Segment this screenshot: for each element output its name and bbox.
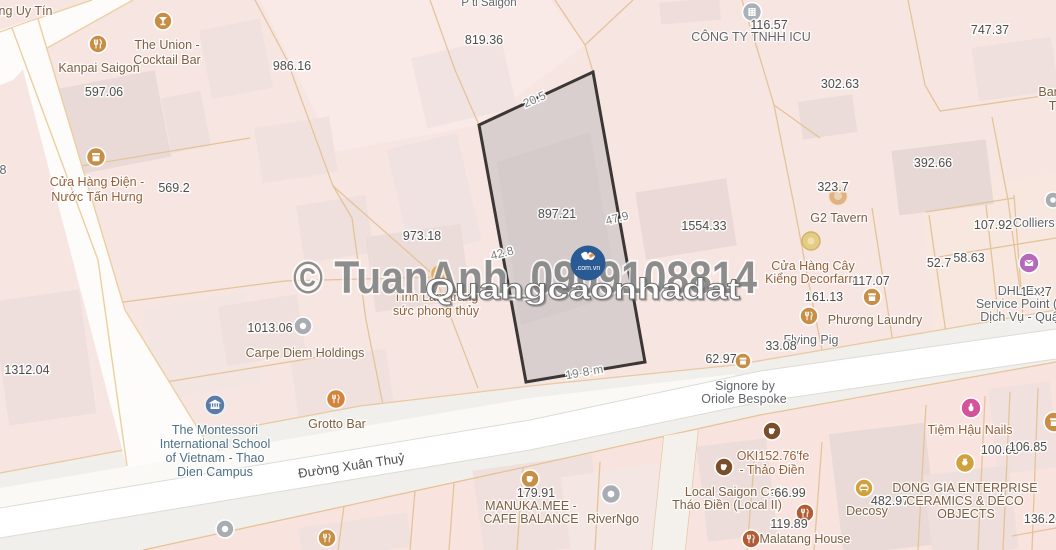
svg-text:Cocktail Bar: Cocktail Bar (133, 53, 200, 67)
svg-text:OBJECTS: OBJECTS (937, 507, 995, 521)
svg-text:Dien Campus: Dien Campus (177, 465, 253, 479)
svg-text:392.66: 392.66 (914, 156, 952, 170)
svg-text:The Union -: The Union - (134, 38, 199, 52)
svg-text:CERAMICS & DÉCO: CERAMICS & DÉCO (906, 493, 1024, 508)
svg-text:52.7: 52.7 (927, 256, 951, 270)
svg-text:Cửa Hàng Cây: Cửa Hàng Cây (771, 259, 855, 273)
svg-text:Dịch Vụ - Quận: Dịch Vụ - Quận (980, 310, 1056, 324)
svg-text:Bana: Bana (1038, 85, 1056, 99)
svg-text:.com.vn: .com.vn (576, 265, 601, 272)
svg-text:RiverNgo: RiverNgo (587, 512, 639, 526)
svg-text:Oriole Bespoke: Oriole Bespoke (701, 392, 787, 406)
svg-text:106.85: 106.85 (1009, 440, 1047, 454)
svg-text:Phương Laundry: Phương Laundry (828, 313, 923, 327)
svg-text:58.63: 58.63 (953, 251, 984, 265)
svg-text:161.13: 161.13 (805, 290, 843, 304)
svg-text:569.2: 569.2 (158, 181, 189, 195)
svg-text:Signore by: Signore by (715, 379, 776, 393)
svg-text:597.06: 597.06 (85, 85, 123, 99)
svg-text:Nước Tấn Hưng: Nước Tấn Hưng (51, 190, 142, 204)
svg-text:MANUKA.MEE -: MANUKA.MEE - (485, 499, 577, 513)
svg-text:àng Uy Tín: àng Uy Tín (0, 4, 53, 18)
svg-text:119.89: 119.89 (770, 517, 807, 531)
svg-text:1013.06: 1013.06 (247, 321, 292, 335)
svg-text:Carpe Diem Holdings: Carpe Diem Holdings (246, 346, 365, 360)
svg-text:Grotto Bar: Grotto Bar (308, 417, 366, 431)
svg-text:International School: International School (160, 437, 271, 451)
svg-text:CAFE BALANCE: CAFE BALANCE (483, 512, 578, 526)
svg-text:P ti Saigon: P ti Saigon (461, 0, 516, 9)
svg-text:62.97: 62.97 (705, 352, 736, 366)
svg-text:- Thảo Điền: - Thảo Điền (739, 463, 804, 477)
svg-text:897.21: 897.21 (538, 207, 576, 221)
svg-text:482.97: 482.97 (871, 494, 909, 508)
svg-text:DHL Ex: DHL Ex (998, 284, 1041, 298)
svg-text:Malatang House: Malatang House (759, 532, 850, 546)
svg-text:Colliers H: Colliers H (1013, 216, 1056, 230)
svg-text:of Vietnam - Thao: of Vietnam - Thao (166, 451, 265, 465)
svg-text:1554.33: 1554.33 (681, 219, 726, 233)
svg-text:747.37: 747.37 (971, 23, 1009, 37)
svg-text:33.08: 33.08 (765, 339, 796, 353)
svg-text:Kanpai Saigon: Kanpai Saigon (58, 61, 139, 75)
svg-text:323.7: 323.7 (817, 180, 848, 194)
svg-text:Cửa Hàng Điện -: Cửa Hàng Điện - (50, 175, 145, 189)
svg-text:973.18: 973.18 (403, 229, 441, 243)
svg-text:Tiệm Hậu Nails: Tiệm Hậu Nails (928, 423, 1013, 437)
svg-text:8: 8 (0, 163, 7, 177)
svg-text:G2 Tavern: G2 Tavern (810, 211, 867, 225)
svg-text:Tháo Điền (Local II): Tháo Điền (Local II) (672, 498, 782, 512)
svg-text:117.07: 117.07 (852, 274, 889, 288)
svg-text:Th: Th (1049, 99, 1056, 113)
svg-text:DONG GIA ENTERPRISE: DONG GIA ENTERPRISE (892, 481, 1037, 495)
svg-text:107.92: 107.92 (974, 218, 1012, 232)
svg-text:1312.04: 1312.04 (4, 363, 49, 377)
svg-text:986.16: 986.16 (273, 59, 311, 73)
svg-text:CÔNG TY TNHH ICU: CÔNG TY TNHH ICU (691, 29, 810, 44)
svg-text:The Montessori: The Montessori (172, 423, 258, 437)
svg-text:sức phong thủy: sức phong thủy (393, 304, 480, 318)
svg-text:302.63: 302.63 (821, 77, 859, 91)
svg-text:Kiểng Decorfarm: Kiểng Decorfarm (765, 272, 859, 286)
svg-text:136.26: 136.26 (1024, 512, 1056, 526)
svg-text:819.36: 819.36 (465, 33, 503, 47)
svg-text:179.91: 179.91 (517, 486, 555, 500)
svg-text:OKI152.76'fe: OKI152.76'fe (737, 449, 810, 463)
svg-text:Service Point (Đ: Service Point (Đ (976, 297, 1056, 311)
